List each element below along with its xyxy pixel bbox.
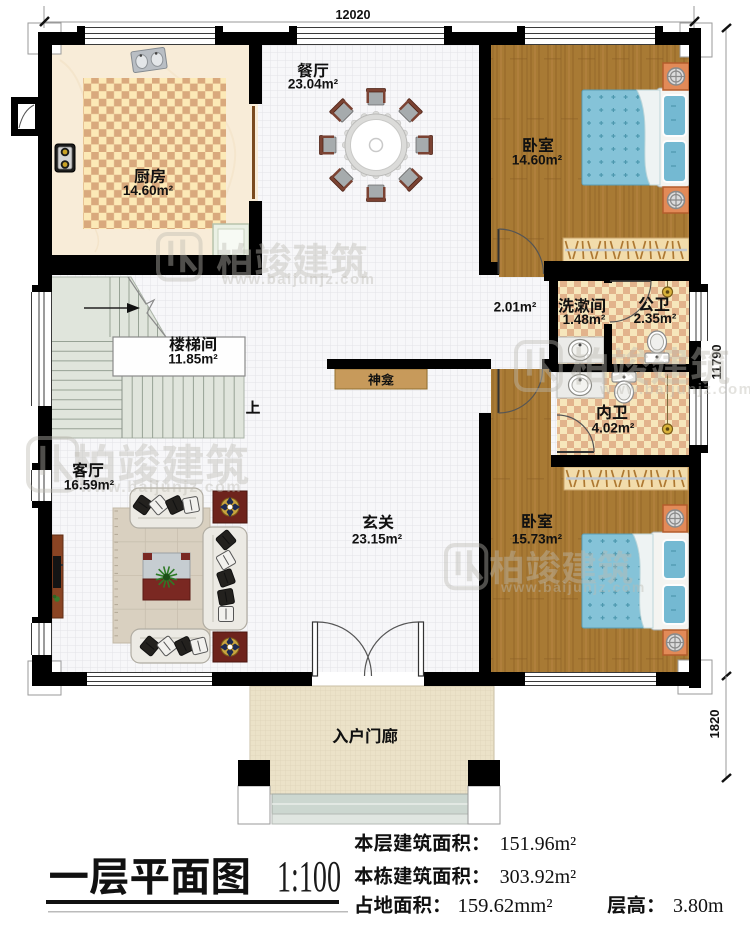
svg-text:14.60m²: 14.60m² xyxy=(123,183,174,198)
svg-text:12020: 12020 xyxy=(336,7,371,22)
svg-text:23.15m²: 23.15m² xyxy=(352,532,403,547)
svg-text:303.92m²: 303.92m² xyxy=(500,866,577,888)
svg-text:159.62mm²: 159.62mm² xyxy=(458,895,553,917)
svg-text:www.baijunjz.com: www.baijunjz.com xyxy=(599,381,750,398)
svg-text:2.35m²: 2.35m² xyxy=(634,311,677,326)
svg-text:www.baijunjz.com: www.baijunjz.com xyxy=(221,271,375,288)
svg-text:11.85m²: 11.85m² xyxy=(168,352,218,367)
svg-text:1.48m²: 1.48m² xyxy=(563,312,606,327)
svg-text:15.73m²: 15.73m² xyxy=(512,532,563,547)
svg-text:1820: 1820 xyxy=(707,710,722,739)
svg-text:23.04m²: 23.04m² xyxy=(288,77,339,92)
svg-text:14.60m²: 14.60m² xyxy=(512,153,563,168)
svg-text:www.baijunjz.com: www.baijunjz.com xyxy=(500,579,646,595)
svg-text:1:100: 1:100 xyxy=(277,852,341,901)
svg-text:151.96m²: 151.96m² xyxy=(500,833,577,855)
svg-text:3.80m: 3.80m xyxy=(673,895,724,917)
svg-text:4.02m²: 4.02m² xyxy=(592,421,635,436)
svg-text:2.01m²: 2.01m² xyxy=(494,300,537,315)
svg-text:16.59m²: 16.59m² xyxy=(64,478,115,493)
